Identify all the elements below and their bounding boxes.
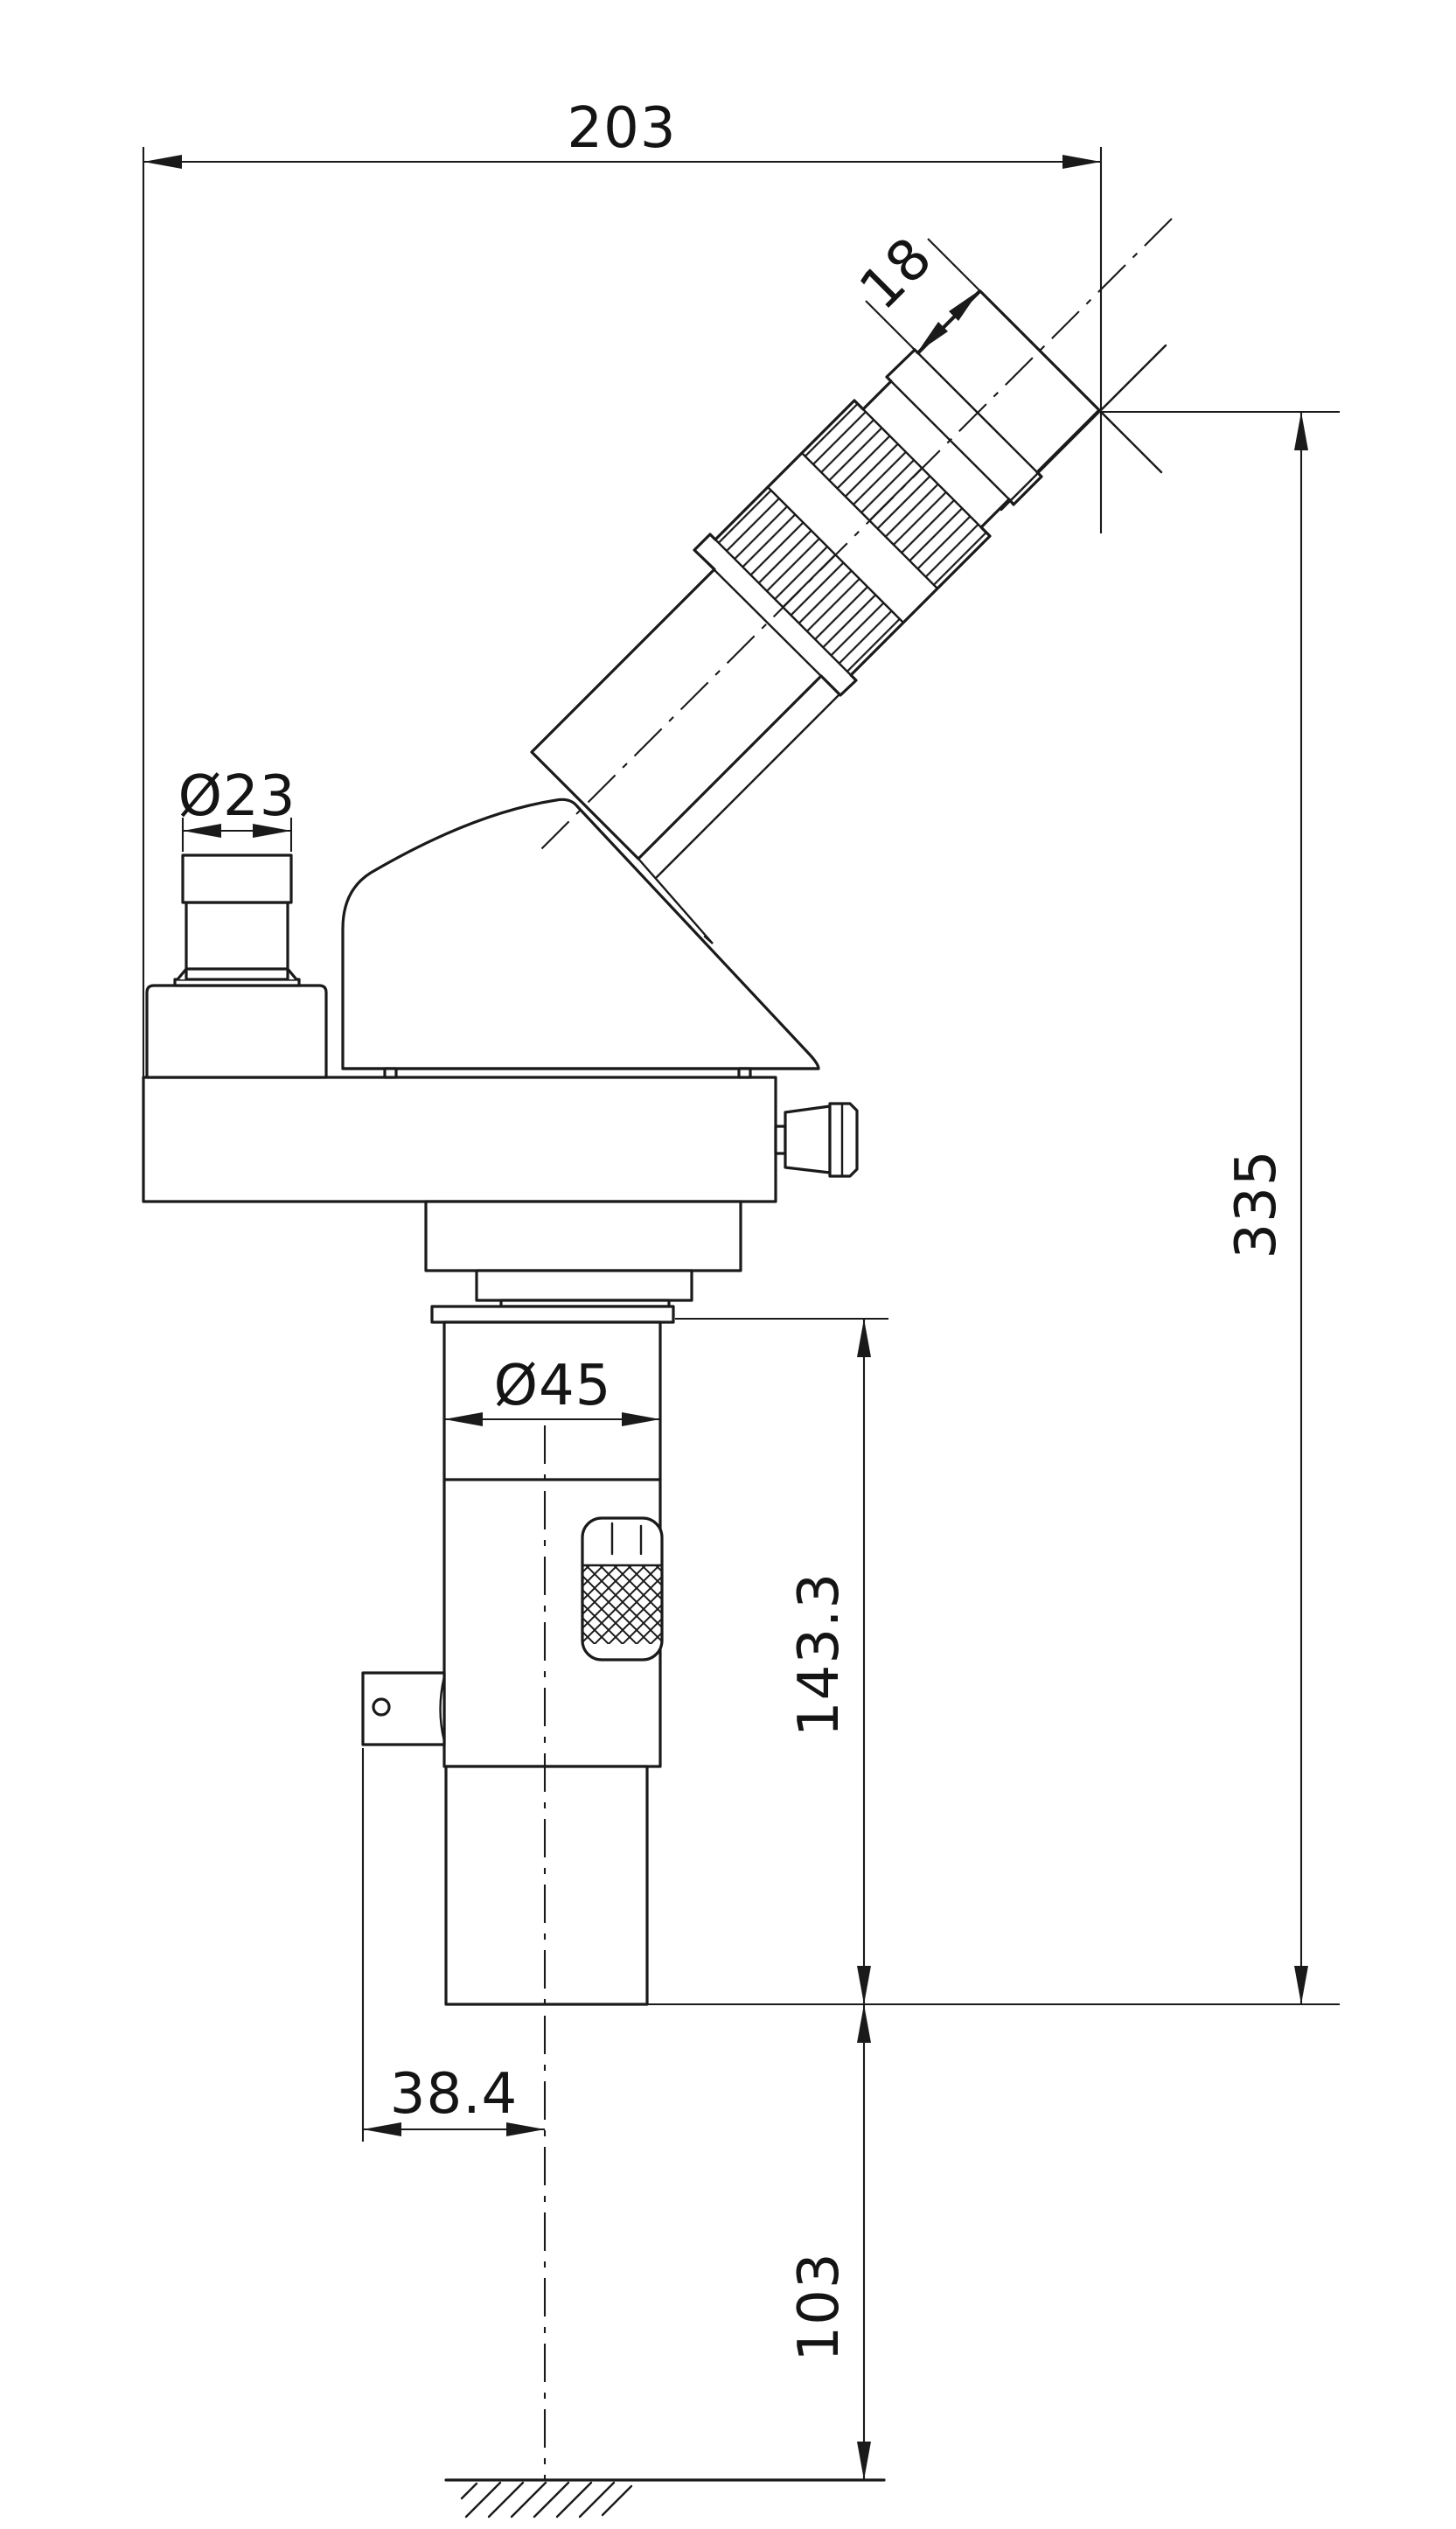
clamp-knob [776,1104,857,1176]
dim-text-335: 335 [1224,1149,1289,1258]
camera-port [147,855,326,1077]
port-upper-cylinder [183,855,291,902]
port-base-lip [175,979,299,986]
ground-symbol [446,2480,884,2517]
eyepiece-axis-line [540,219,1172,850]
column-flange [432,1306,673,1322]
dim-text-d23: Ø23 [178,764,296,829]
eyepiece-assembly [532,291,1099,944]
ground-hatch [462,2483,631,2517]
microscope-side-view-drawing: 203 18 Ø23 335 Ø45 1 [0,0,1456,2529]
head-body [343,799,819,1077]
inner-column [446,1766,647,2004]
technical-drawing-page: 203 18 Ø23 335 Ø45 1 [0,0,1456,2529]
head-base-tab-left [385,1069,396,1077]
port-flare [178,969,296,979]
dimension-335: 335 [1100,412,1340,2004]
dimension-d23: Ø23 [178,764,296,852]
port-lower-cylinder [186,902,288,969]
dimension-143-3: 143.3 [647,1319,1340,2004]
mounting-plate [143,1077,776,1202]
dim-text-18: 18 [847,225,944,322]
head-base-tab-right [739,1069,750,1077]
side-bracket [363,1673,444,1745]
dim-text-d45: Ø45 [494,1354,612,1418]
knob-knurl-hatch [582,1565,662,1644]
dim-text-203: 203 [567,96,676,161]
dim-text-143-3: 143.3 [787,1572,852,1737]
neck-adapter [426,1202,741,1322]
dim-text-38-4: 38.4 [390,2062,519,2127]
focus-knob [582,1518,662,1660]
dimension-103: 103 [787,2004,871,2480]
dim-text-103: 103 [787,2252,852,2361]
